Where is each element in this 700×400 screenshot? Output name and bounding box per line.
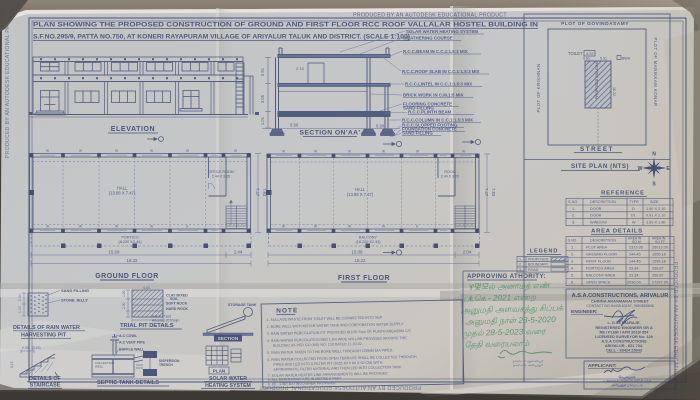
svg-text:0.91 X 2.10: 0.91 X 2.10 (646, 214, 665, 218)
svg-text:LEGEND: LEGEND (530, 249, 558, 255)
svg-text:WELL: WELL (95, 365, 104, 369)
svg-text:7.47: 7.47 (255, 188, 260, 197)
svg-text:W: W (79, 149, 82, 153)
svg-text:PLOT AREA: PLOT AREA (586, 246, 608, 250)
svg-text:W: W (115, 225, 118, 229)
svg-text:SECTION: SECTION (218, 336, 239, 341)
svg-text:TOILET: TOILET (568, 51, 583, 56)
svg-text:TRIAL PIT DETAILS: TRIAL PIT DETAILS (120, 323, 174, 329)
svg-text:5.: 5. (571, 274, 574, 278)
svg-text:18.22: 18.22 (612, 87, 616, 96)
svg-text:3.: 3. (571, 260, 574, 264)
svg-text:நகராட்சி, அரியலூர்: நகராட்சி, அரியலூர் (513, 363, 543, 367)
svg-text:R.C.C.ROOF SLAB IN C.C.1:1.5:: R.C.C.ROOF SLAB IN C.C.1:1.5:3 MIX (402, 69, 480, 74)
svg-text:PROPOSED: PROPOSED (528, 257, 549, 261)
svg-text:18.22: 18.22 (355, 258, 367, 263)
svg-text:1.00: 1.00 (18, 306, 22, 313)
svg-text:DESCRIPTION: DESCRIPTION (590, 200, 616, 204)
svg-text:WEATHERING COURSE: WEATHERING COURSE (403, 36, 453, 41)
svg-text:2.44: 2.44 (234, 250, 243, 255)
svg-text:BALCONY AREA: BALCONY AREA (586, 274, 616, 278)
svg-text:R.C.C.LINTEL IN C.C.1:1.5:3 M: R.C.C.LINTEL IN C.C.1:1.5:3 MIX (405, 82, 472, 87)
svg-text:SIZE: SIZE (650, 200, 659, 204)
svg-text:CELL - 98424 25643: CELL - 98424 25643 (606, 348, 643, 353)
svg-text:2313.95: 2313.95 (629, 246, 643, 250)
svg-text:6.: 6. (571, 281, 574, 285)
svg-text:2.13: 2.13 (296, 66, 305, 71)
svg-text:15.09: 15.09 (109, 250, 121, 255)
svg-text:W: W (150, 149, 153, 153)
svg-text:Adopted 20T/Sqm: Adopted 20T/Sqm (152, 319, 180, 323)
svg-text:W: W (462, 150, 465, 154)
svg-text:TYPE: TYPE (629, 200, 639, 204)
svg-text:(13.08 X 7.47): (13.08 X 7.47) (109, 191, 136, 196)
svg-text:FIRST FLOOR: FIRST FLOOR (338, 275, 390, 282)
svg-text:A.C VENT PIPE: A.C VENT PIPE (119, 341, 146, 345)
svg-text:REFERENCE: REFERENCE (601, 191, 645, 197)
svg-text:HARD ROCK: HARD ROCK (166, 307, 188, 311)
svg-text:0.19: 0.19 (10, 361, 14, 368)
svg-text:R.C.C.PLINTH BEAM: R.C.C.PLINTH BEAM (408, 110, 452, 115)
svg-text:(13.08 X 7.47): (13.08 X 7.47) (347, 192, 374, 197)
svg-text:1.50 X 2.10: 1.50 X 2.10 (646, 207, 665, 211)
svg-text:DOOR: DOOR (590, 214, 602, 218)
svg-text:PRODUCED BY AN AUTODESK EDUCAT: PRODUCED BY AN AUTODESK EDUCATIONAL PROD… (5, 5, 11, 158)
svg-text:PORTICO: PORTICO (121, 236, 138, 240)
svg-text:0.91: 0.91 (260, 67, 265, 76)
svg-text:26012.00: 26012.00 (652, 246, 668, 250)
svg-text:ROOM: ROOM (444, 170, 455, 174)
svg-text:D1: D1 (631, 214, 636, 218)
svg-text:2.: 2. (571, 253, 574, 257)
svg-text:SQ.FT: SQ.FT (655, 240, 665, 244)
svg-text:1.00: 1.00 (122, 290, 126, 297)
svg-text:SEPTIC TANK DETAILS: SEPTIC TANK DETAILS (97, 380, 159, 386)
svg-text:GROUND FLOOR: GROUND FLOOR (586, 253, 617, 257)
svg-text:5.61: 5.61 (583, 57, 590, 61)
svg-text:1555.18: 1555.18 (652, 260, 666, 264)
svg-text:3.05: 3.05 (260, 94, 265, 103)
svg-text:ENGINEER:: ENGINEER: (571, 309, 598, 315)
svg-text:2.: 2. (572, 214, 575, 218)
svg-text:W: W (348, 150, 351, 154)
svg-text:APPROVING ATHORITY:: APPROVING ATHORITY: (467, 273, 546, 280)
svg-text:TRENCH: TRENCH (159, 363, 173, 367)
svg-text:W: W (234, 149, 237, 153)
svg-text:ELEVATION: ELEVATION (111, 126, 155, 133)
svg-text:DOOR: DOOR (590, 207, 602, 211)
svg-text:PLAN: PLAN (213, 368, 226, 373)
svg-text:SOLAR WATER: SOLAR WATER (209, 376, 247, 382)
svg-text:D: D (632, 207, 635, 211)
svg-text:NOTE: NOTE (276, 307, 298, 314)
svg-text:W: W (46, 225, 49, 229)
svg-text:S.F.NO.295/9, PATTA NO.750,: S.F.NO.295/9, PATTA NO.750, AT KONERI RA… (33, 35, 410, 41)
svg-text:N: N (652, 152, 656, 158)
svg-text:4.: 4. (571, 267, 574, 271)
svg-text:W: W (79, 225, 82, 229)
svg-text:(18.220 X2.44): (18.220 X2.44) (355, 240, 381, 244)
svg-text:W: W (46, 149, 49, 153)
svg-text:358.87: 358.87 (652, 267, 664, 271)
svg-text:144.45: 144.45 (629, 253, 641, 257)
svg-text:HARVESTING PIT: HARVESTING PIT (21, 333, 67, 339)
svg-text:358.87: 358.87 (652, 274, 664, 278)
svg-text:3.: 3. (572, 220, 575, 224)
svg-text:PLAN SHOWING THE PROPOSED: PLAN SHOWING THE PROPOSED CONSTRUCTION O… (33, 23, 538, 29)
svg-text:R.C.C.BEAM IN C.C.1:1.5:3 MI: R.C.C.BEAM IN C.C.1:1.5:3 MIX (403, 49, 468, 54)
svg-text:W: W (314, 150, 317, 154)
svg-text:BALCONY: BALCONY (359, 236, 378, 240)
svg-text:BAFFLE WALL: BAFFLE WALL (119, 348, 145, 352)
svg-text:BOUNDARY: BOUNDARY (528, 263, 549, 267)
svg-text:0.30: 0.30 (18, 294, 22, 301)
svg-text:PROPOSED BUILDING: PROPOSED BUILDING (595, 60, 599, 99)
svg-text:A.C COWL: A.C COWL (119, 334, 138, 338)
svg-text:33.34: 33.34 (629, 274, 639, 278)
svg-text:WINDOW: WINDOW (590, 220, 607, 224)
svg-text:1.50 X 1.50: 1.50 X 1.50 (646, 220, 665, 224)
svg-text:5.51: 5.51 (600, 57, 607, 61)
svg-text:CONTACT NO:94435 63157, 999456: CONTACT NO:94435 63157, 9994565846 (586, 304, 653, 308)
svg-text:HEATING SYSTEM: HEATING SYSTEM (205, 383, 251, 389)
svg-text:W: W (638, 166, 643, 172)
svg-text:PLOT OF GOVINDASAMY: PLOT OF GOVINDASAMY (561, 21, 629, 27)
svg-text:GROUND FLOOR: GROUND FLOOR (95, 273, 159, 280)
svg-text:1.: 1. (519, 257, 522, 261)
svg-text:2.: 2. (519, 263, 522, 267)
svg-text:(0.15): (0.15) (32, 346, 41, 350)
svg-text:(8.220 X2.44): (8.220 X2.44) (118, 240, 142, 244)
svg-text:PRODUCED BY AN AUTODESK EDUCAT: PRODUCED BY AN AUTODESK EDUCATIONAL PROD… (353, 13, 507, 19)
svg-text:15.09: 15.09 (352, 250, 364, 255)
svg-text:STONE JELLY: STONE JELLY (61, 298, 88, 303)
svg-text:SITE PLAN (NTS): SITE PLAN (NTS) (571, 163, 629, 170)
svg-text:W: W (150, 225, 153, 229)
svg-text:SOIL: SOIL (170, 297, 179, 301)
svg-text:W: W (282, 225, 285, 229)
svg-text:OFFICE ROOM: OFFICE ROOM (208, 170, 233, 174)
svg-text:1555.18: 1555.18 (652, 253, 666, 257)
svg-text:DETAILS OF RAIN WATER: DETAILS OF RAIN WATER (13, 325, 80, 331)
svg-text:W: W (348, 225, 351, 229)
svg-text:STAIRCASE: STAIRCASE (30, 383, 61, 389)
svg-text:BWH: BWH (622, 57, 631, 61)
svg-text:4 ST: 4 ST (586, 52, 595, 56)
svg-text:W: W (282, 150, 285, 154)
svg-text:W: W (115, 149, 118, 153)
svg-text:1.: 1. (571, 246, 574, 250)
svg-text:FIRST FLOOR: FIRST FLOOR (586, 260, 611, 264)
svg-text:27297.95: 27297.95 (652, 281, 668, 285)
svg-text:PLOT OF MANIKKAM KONAR: PLOT OF MANIKKAM KONAR (653, 38, 658, 107)
svg-text:STREET: STREET (580, 146, 614, 153)
svg-text:AREA DETAILS: AREA DETAILS (591, 229, 643, 235)
svg-text:2.44 X 3.05: 2.44 X 3.05 (441, 175, 459, 179)
svg-text:W: W (382, 150, 385, 154)
svg-text:S.NO: S.NO (568, 239, 577, 243)
svg-text:33.34: 33.34 (629, 267, 639, 271)
svg-text:SAND FILLING: SAND FILLING (61, 288, 89, 293)
svg-text:2536.04: 2536.04 (627, 281, 641, 285)
svg-text:2.04: 2.04 (463, 250, 472, 255)
svg-text:OPEN SPACE: OPEN SPACE (586, 281, 611, 285)
svg-text:144.45: 144.45 (629, 260, 641, 264)
svg-text:4.00: 4.00 (143, 286, 150, 290)
svg-text:DETAILS OF: DETAILS OF (29, 376, 61, 382)
svg-text:PLOT OF KRISHNAN: PLOT OF KRISHNAN (536, 63, 541, 112)
svg-text:APPLICANT:: APPLICANT: (588, 363, 617, 369)
svg-text:7.83: 7.83 (491, 188, 496, 197)
svg-text:1.: 1. (572, 207, 575, 211)
svg-text:2.44 X 3.05: 2.44 X 3.05 (212, 175, 230, 179)
svg-text:W: W (314, 225, 317, 229)
svg-text:PORTICO AREA: PORTICO AREA (586, 267, 615, 271)
svg-text:0.90: 0.90 (376, 124, 385, 129)
svg-text:SQ.M: SQ.M (632, 240, 641, 244)
svg-text:W: W (186, 149, 189, 153)
svg-text:S.NO: S.NO (568, 200, 577, 204)
svg-text:W: W (382, 225, 385, 229)
svg-text:SOFT ROCK: SOFT ROCK (166, 302, 188, 306)
svg-text:1.01: 1.01 (260, 116, 265, 125)
svg-text:W: W (632, 220, 636, 224)
svg-text:0.90: 0.90 (290, 123, 299, 128)
svg-text:CHINNA ARANMANAI STREET: CHINNA ARANMANAI STREET (591, 299, 649, 304)
svg-text:0.30: 0.30 (22, 346, 29, 350)
svg-text:BRICK WORK IN C.M.1:5 MIX: BRICK WORK IN C.M.1:5 MIX (403, 93, 464, 98)
svg-text:SECTION ON'AA': SECTION ON'AA' (300, 130, 361, 137)
svg-text:SOLAR WATER HEATING SYSTEM: SOLAR WATER HEATING SYSTEM (406, 29, 478, 34)
svg-text:DESCRIPTION: DESCRIPTION (590, 239, 616, 243)
svg-text:18.22: 18.22 (127, 258, 139, 263)
svg-text:STORAGE TANK: STORAGE TANK (228, 303, 257, 307)
svg-text:7.47: 7.47 (484, 188, 489, 197)
svg-text:2.00: 2.00 (122, 302, 126, 309)
svg-text:W: W (416, 150, 419, 154)
svg-text:ROAD: ROAD (528, 268, 539, 272)
